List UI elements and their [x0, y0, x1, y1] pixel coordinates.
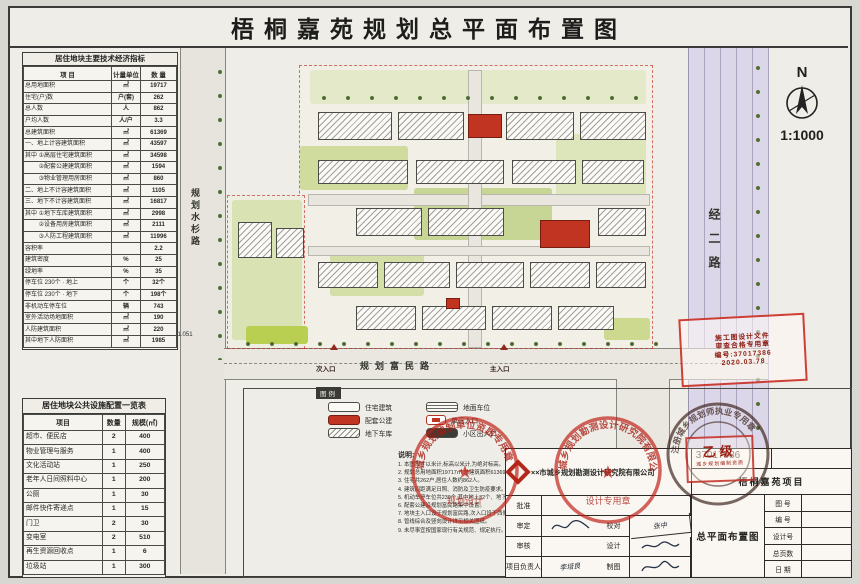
legend-label: 单元入口 [451, 415, 507, 425]
legend-label: 地面车位 [463, 402, 519, 412]
title-block: ××市城乡规划勘测设计研究院有限公司 批准 审定 校对 张中 审核 设计 项目负… [505, 448, 852, 578]
building-block [318, 262, 378, 288]
notes-block: 说明: 1. 本图尺寸以米计,标高以米计,为绝对标高。2. 规划总用地面积197… [398, 450, 514, 535]
meta-row: 图 号 [765, 495, 851, 512]
note-line: 6. 配套公建沿规划富民路集中设置。 [398, 502, 514, 510]
building-block [398, 112, 464, 140]
drawing-name: 总平面布置图 [692, 495, 765, 577]
building-block [384, 262, 450, 288]
building-block [558, 306, 614, 330]
legend-label: 住宅建筑 [365, 402, 421, 412]
building-block [422, 306, 486, 330]
table-row: 总人数人862 [24, 104, 177, 116]
facilities-table: 居住地块公共设施配置一览表 项目 数量 规模(㎡) 超市、便民店2400 物业管… [22, 398, 166, 578]
legend-label: 地下车库 [365, 428, 421, 438]
main-entrance-label: 主入口 [490, 363, 510, 373]
lead-signature: 李培良 [541, 554, 599, 580]
building-block [318, 112, 392, 140]
table-row: 非机动车停车位辆743 [24, 301, 177, 313]
title-band: 梧桐嘉苑规划总平面布置图 [10, 8, 848, 48]
table-row: 物业管理与服务1400 [24, 445, 165, 459]
building-block [506, 112, 574, 140]
building-block [416, 160, 504, 184]
stamp-grade-text: 乙级 [687, 440, 752, 461]
indicators-table: 居住地块主要技术经济指标 项 目 计量单位 数 量 总用地面积㎡19717 住宅… [22, 52, 178, 350]
table-row: ②配套公建建筑面积㎡1594 [24, 162, 177, 174]
road-label-west: 规划水杉路 [189, 188, 202, 248]
building-block [530, 262, 590, 288]
meta-row: 日 期 [765, 561, 851, 577]
label-verify: 审定 [506, 516, 542, 536]
col-header: 规模(㎡) [125, 415, 164, 431]
scale-label: 1:1000 [770, 127, 834, 143]
legend-swatch-parking [426, 402, 458, 412]
legend: 住宅建筑 地面车位 配套公建 单元入口 地下车库 小区出入口 [328, 400, 524, 439]
legend-label: 小区出入口 [463, 428, 519, 438]
table-row: 变电室2510 [24, 531, 165, 545]
table-row: 其中 ①高层住宅建筑面积㎡34598 [24, 150, 177, 162]
table-row: 绿地率%35 [24, 266, 177, 278]
signature-scribble [549, 519, 591, 533]
company-name: ××市城乡规划勘测设计研究院有限公司 [531, 468, 654, 477]
draft-signature [630, 557, 691, 577]
table-row: 建筑密度%25 [24, 254, 177, 266]
note-line: 8. 管线综合及竖向设计详见相关图纸。 [398, 518, 514, 526]
legend-swatch-site-entry [426, 428, 458, 438]
public-building-red [540, 220, 590, 248]
table-row: 三、地下不计容建筑面积㎡16817 [24, 196, 177, 208]
side-entrance-marker [330, 344, 338, 350]
table-row: 门卫230 [24, 517, 165, 531]
public-building-red [446, 298, 460, 309]
note-line: 4. 建筑间距满足日照、消防及卫生防疫要求。 [398, 486, 514, 494]
table-row: 住宅(户)数户(套)262 [24, 92, 177, 104]
building-block [456, 262, 524, 288]
meta-row: 设计号 [765, 528, 851, 545]
north-arrow-group: N 1:1000 [770, 64, 834, 143]
table-row: ③物业管理用房面积㎡860 [24, 173, 177, 185]
label-draft: 制图 [598, 557, 630, 577]
building-block [356, 208, 422, 236]
public-building-red [468, 114, 502, 138]
building-block [238, 222, 272, 258]
note-line: 9. 未尽事宜按国家现行有关规范、规定执行。 [398, 527, 514, 535]
col-header: 项 目 [24, 67, 112, 81]
road-label-east: 经二路 [706, 208, 723, 280]
tree-row-top [312, 94, 642, 102]
table-row: 垃圾站1300 [24, 560, 165, 574]
table-row: 其中 ①地下车库建筑面积㎡2998 [24, 208, 177, 220]
label-lead: 项目负责人 [506, 557, 542, 577]
building-block [596, 262, 646, 288]
table-row: 邮件快件寄递点115 [24, 502, 165, 516]
legend-swatch-unit-entry [426, 415, 446, 425]
table-row: ②设备用房建筑面积㎡2111 [24, 220, 177, 232]
compass-icon [780, 81, 824, 125]
meta-row: 总页数 [765, 545, 851, 562]
table-row: 再生资源回收点16 [24, 546, 165, 560]
table-row: 超市、便民店2400 [24, 431, 165, 445]
table-row: 总建筑面积㎡61369 [24, 127, 177, 139]
building-block [492, 306, 552, 330]
legend-swatch-basement [328, 428, 360, 438]
green-area [232, 200, 302, 340]
road-label-south: 规划富民路 [360, 359, 435, 372]
company-logo-icon [505, 459, 530, 484]
note-line: 1. 本图尺寸以米计,标高以米计,为绝对标高。 [398, 461, 514, 469]
table-row: 一、地上计容建筑面积㎡43597 [24, 138, 177, 150]
note-line: 7. 地块主入口设于规划富民路,次入口设于西侧。 [398, 510, 514, 518]
legend-title: 图例 [316, 387, 341, 399]
label-proof: 校对 [598, 516, 630, 536]
design-signature [630, 537, 691, 557]
label-approve: 批准 [506, 496, 542, 516]
side-entrance-label: 次入口 [316, 363, 336, 373]
note-line: 2. 规划总用地面积19717㎡,总建筑面积61369㎡。 [398, 469, 514, 477]
building-block [356, 306, 416, 330]
review-stamp-rect: 施工图设计文件 审查合格专用章 编号:37017386 2020.03.78 [678, 313, 807, 388]
tree-col-left [216, 60, 224, 360]
meta-row: 编 号 [765, 512, 851, 529]
note-line: 3. 住宅共262户,居住人数约862人。 [398, 477, 514, 485]
table-row: 公厕130 [24, 488, 165, 502]
table-row: 户均人数人/户3.3 [24, 115, 177, 127]
internal-road [308, 246, 650, 256]
company-row: ××市城乡规划勘测设计研究院有限公司 [506, 449, 691, 496]
notes-title: 说明: [398, 450, 514, 460]
table-row: ③人防工程建筑面积㎡11996 [24, 231, 177, 243]
north-label: N [770, 64, 834, 81]
building-block [318, 160, 408, 184]
table-row: 人防建筑面积㎡220 [24, 324, 177, 336]
building-block [582, 160, 644, 184]
building-block [276, 228, 304, 258]
table-row: 容积率2.2 [24, 243, 177, 255]
legend-label: 配套公建 [365, 415, 421, 425]
col-header: 项目 [24, 415, 103, 431]
main-entrance-marker [500, 344, 508, 350]
table-row: 停车位 230个 · 地下个198个 [24, 289, 177, 301]
page-title: 梧桐嘉苑规划总平面布置图 [231, 10, 627, 44]
building-block [512, 160, 576, 184]
tree-row-bottom [236, 340, 666, 348]
table-row: 室外活动场地面积㎡190 [24, 312, 177, 324]
table-row: 老年人日间照料中心1200 [24, 474, 165, 488]
table-row: 停车位 230个 · 地上个32个 [24, 278, 177, 290]
stamp-line: 2020.03.78 [721, 358, 765, 368]
signature-grid: 批准 审定 校对 张中 审核 设计 项目负责人 李培良 制图 [506, 496, 691, 577]
stamp-grade-subtext: 城乡规划编制资质 [688, 459, 752, 468]
col-header: 计量单位 [111, 67, 140, 81]
approve-value [542, 496, 691, 516]
facilities-table-title: 居住地块公共设施配置一览表 [23, 399, 165, 414]
col-header: 数 量 [140, 67, 176, 81]
col-header: 数量 [102, 415, 125, 431]
verify-signature [542, 516, 598, 536]
label-check: 审核 [506, 537, 542, 557]
signature-scribble [639, 560, 681, 574]
table-row: 总用地面积㎡19717 [24, 81, 177, 93]
signature-scribble [639, 539, 681, 553]
label-design: 设计 [598, 537, 630, 557]
check-value [542, 537, 598, 557]
scanned-plan-sheet: 梧桐嘉苑规划总平面布置图 规划水杉路 经二路 规划富民路 次入口 主入口 [0, 0, 860, 584]
table-row: 其中地下人防面积㎡1985 [24, 336, 177, 348]
table-row: 二、地上不计容建筑面积㎡1105 [24, 185, 177, 197]
legend-swatch-public [328, 415, 360, 425]
legend-swatch-residential [328, 402, 360, 412]
table-row: 文化活动站1250 [24, 459, 165, 473]
building-block [580, 112, 646, 140]
grade-stamp: 乙级 城乡规划编制资质 [685, 435, 755, 483]
note-line: 5. 机动车停车位共230个,其中地上32个、地下198个。 [398, 494, 514, 502]
indicators-table-title: 居住地块主要技术经济指标 [23, 53, 177, 66]
building-block [428, 208, 504, 236]
building-block [598, 208, 646, 236]
